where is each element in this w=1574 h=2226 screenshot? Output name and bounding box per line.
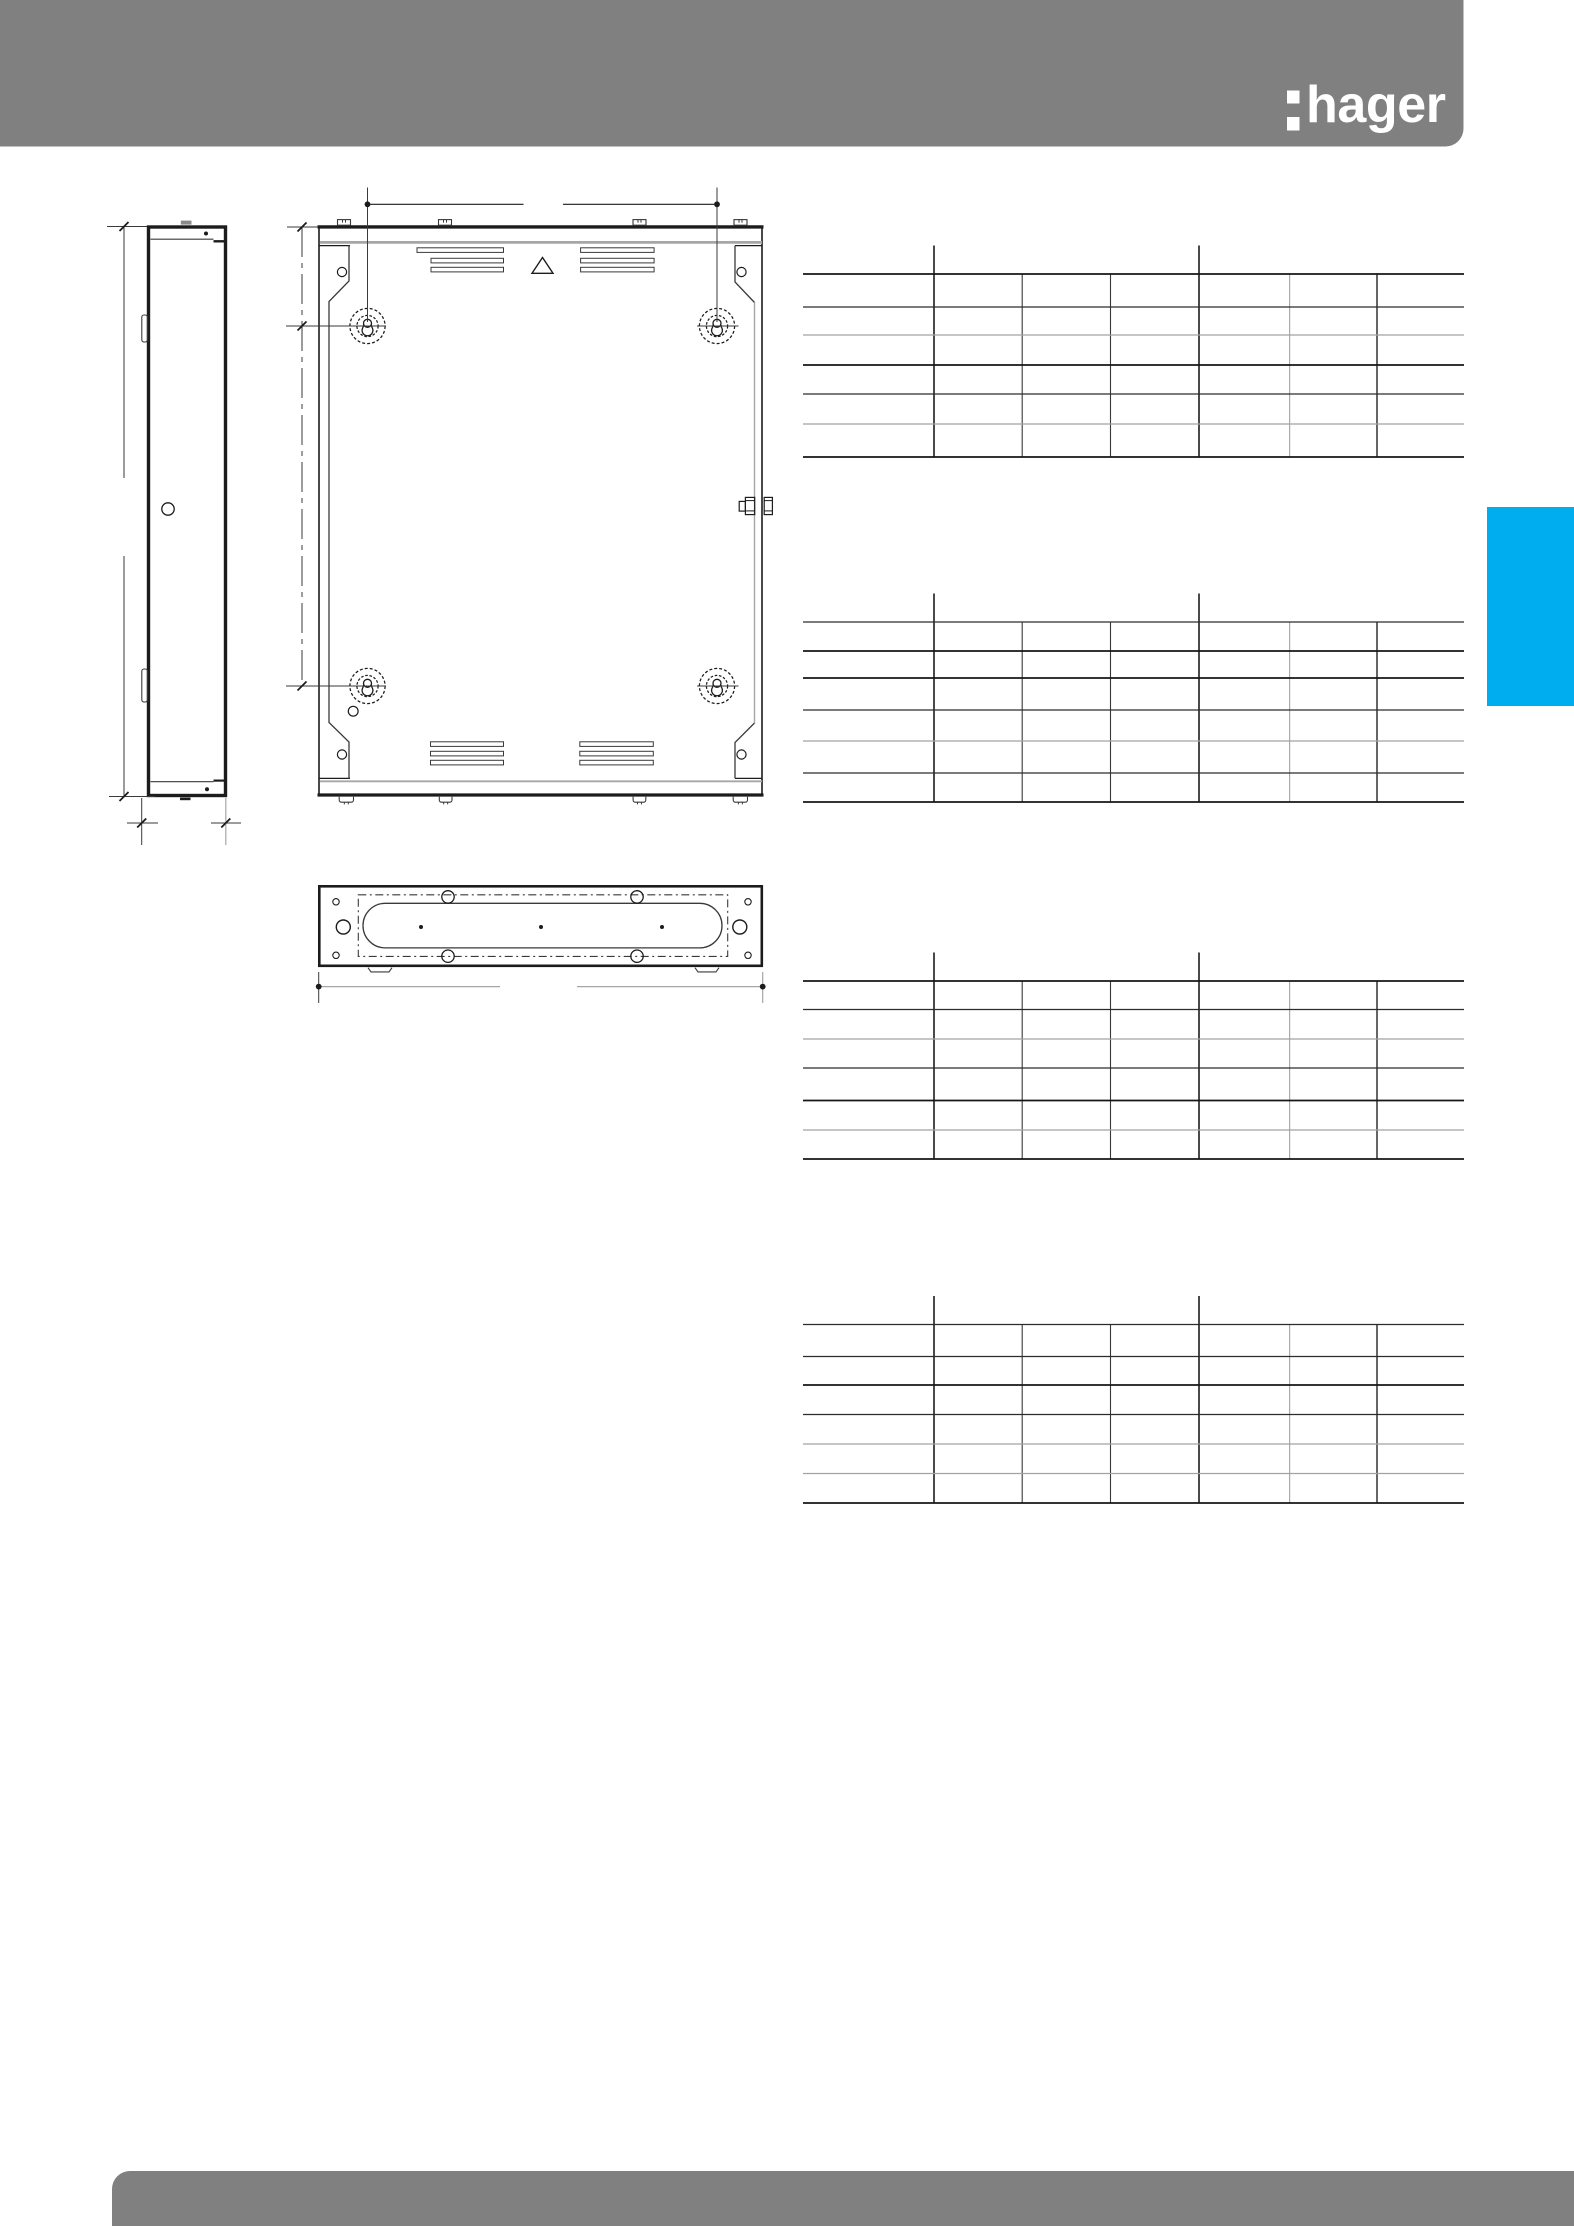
svg-text:hager: hager: [1306, 76, 1446, 134]
